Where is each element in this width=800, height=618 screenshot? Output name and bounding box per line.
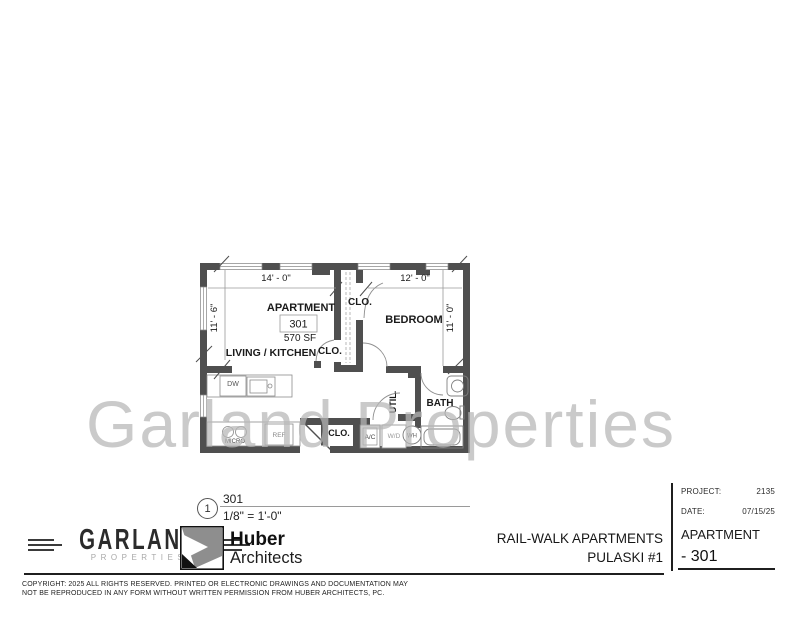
closet-shelf-lines bbox=[346, 272, 350, 363]
floor-plan: 14' - 0" 12' - 0" 11' - 6" 11' - 0" APAR… bbox=[190, 250, 480, 465]
project-value: 2135 bbox=[756, 487, 775, 496]
footer-divider bbox=[24, 573, 664, 575]
micro-label: MICRO bbox=[225, 439, 245, 445]
closet-low-label: CLO. bbox=[328, 428, 350, 438]
dim-top-left: 14' - 0" bbox=[261, 273, 290, 284]
apartment-label: APARTMENT bbox=[267, 302, 336, 314]
sheet-label: APARTMENT bbox=[681, 527, 775, 542]
huber-logo-name: Huber bbox=[230, 530, 302, 549]
dim-left: 11' - 6" bbox=[209, 304, 220, 333]
copyright-line2: NOT BE REPRODUCED IN ANY FORM WITHOUT WR… bbox=[22, 589, 408, 598]
dw-label: DW bbox=[227, 381, 239, 388]
bath-door-arc bbox=[421, 373, 443, 395]
bath-fixtures bbox=[421, 376, 468, 448]
wh-label: WH bbox=[407, 434, 417, 440]
drawing-sheet: 14' - 0" 12' - 0" 11' - 6" 11' - 0" APAR… bbox=[0, 0, 800, 618]
wd-label: W/D bbox=[388, 433, 401, 440]
copyright-line1: COPYRIGHT: 2025 ALL RIGHTS RESERVED. PRI… bbox=[22, 580, 408, 589]
title-block-divider bbox=[671, 483, 673, 571]
project-label: PROJECT: bbox=[681, 487, 721, 496]
kitchen-fixtures bbox=[207, 375, 300, 446]
project-title: RAIL-WALK APARTMENTS PULASKI #1 bbox=[497, 529, 663, 567]
drawing-title-underline bbox=[220, 506, 470, 507]
bedroom-door-arc bbox=[363, 343, 387, 367]
ref-label: REF bbox=[273, 432, 286, 439]
project-title-line1: RAIL-WALK APARTMENTS bbox=[497, 529, 663, 548]
bath-label: BATH bbox=[426, 398, 453, 409]
util-label: UTIL. bbox=[388, 391, 398, 414]
closet-mid-label: CLO. bbox=[318, 346, 342, 357]
ac-label: A/C bbox=[365, 434, 376, 441]
entry-opening bbox=[300, 446, 330, 454]
drawing-scale: 1/8" = 1'-0" bbox=[223, 509, 282, 523]
drawing-number: 1 bbox=[204, 503, 210, 515]
sheet-number: - 301 bbox=[681, 548, 775, 566]
date-label: DATE: bbox=[681, 507, 705, 516]
garland-logo-lines-left bbox=[28, 539, 62, 551]
title-block: PROJECT: 2135 DATE: 07/15/25 APARTMENT -… bbox=[681, 487, 775, 566]
closet-top-label: CLO. bbox=[348, 297, 372, 308]
drawing-title: 301 bbox=[223, 492, 243, 506]
drawing-number-bubble: 1 bbox=[197, 498, 218, 519]
dim-right: 11' - 0" bbox=[445, 304, 456, 333]
project-title-line2: PULASKI #1 bbox=[497, 548, 663, 567]
windows bbox=[200, 263, 448, 417]
date-value: 07/15/25 bbox=[742, 507, 775, 516]
unit-area: 570 SF bbox=[284, 333, 316, 344]
dim-top-right: 12' - 0" bbox=[400, 273, 429, 284]
huber-logo-sub: Architects bbox=[230, 550, 302, 567]
bath-door-opening bbox=[421, 366, 443, 374]
unit-number: 301 bbox=[289, 319, 307, 331]
living-kitchen-label: LIVING / KITCHEN bbox=[226, 347, 316, 359]
huber-logo-icon bbox=[180, 526, 224, 570]
copyright-notice: COPYRIGHT: 2025 ALL RIGHTS RESERVED. PRI… bbox=[22, 580, 408, 598]
huber-logo: Huber Architects bbox=[180, 526, 302, 570]
title-block-underline bbox=[678, 568, 775, 570]
bedroom-label: BEDROOM bbox=[385, 314, 442, 326]
